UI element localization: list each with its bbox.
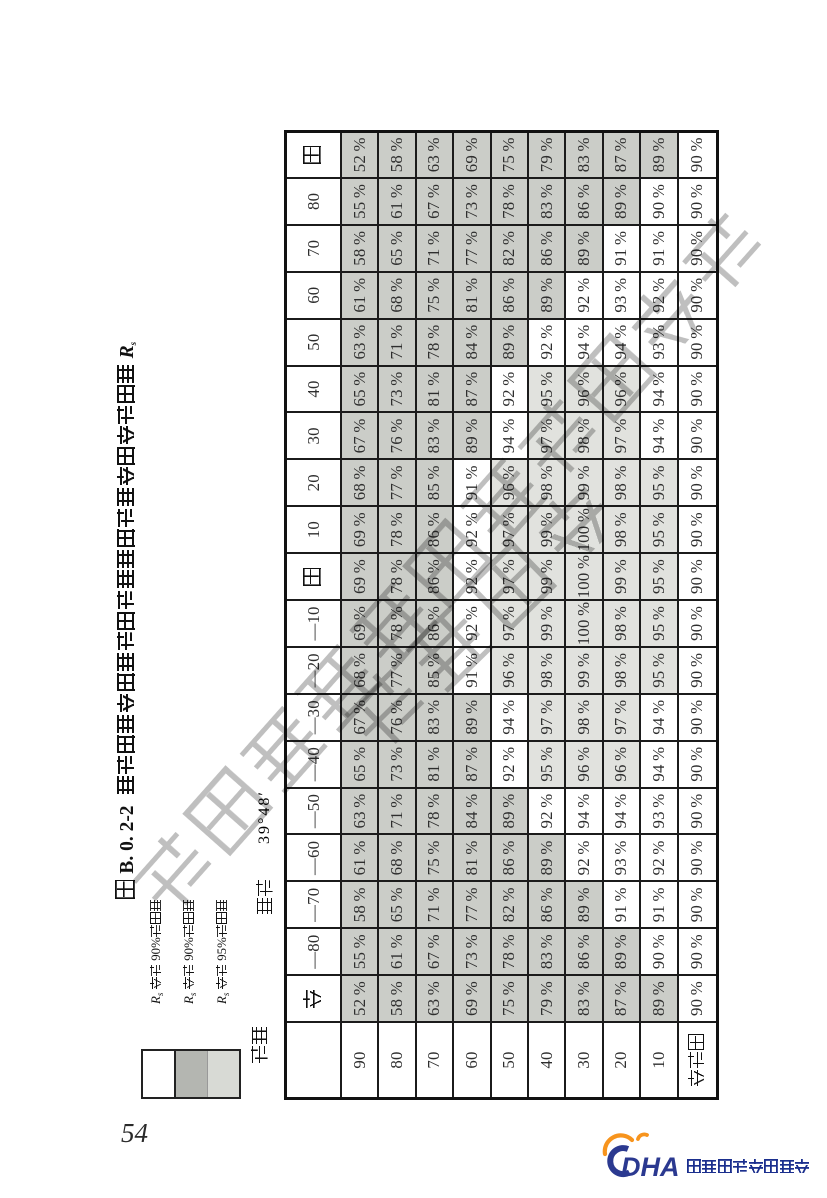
svg-text:DHA: DHA — [621, 1152, 680, 1182]
